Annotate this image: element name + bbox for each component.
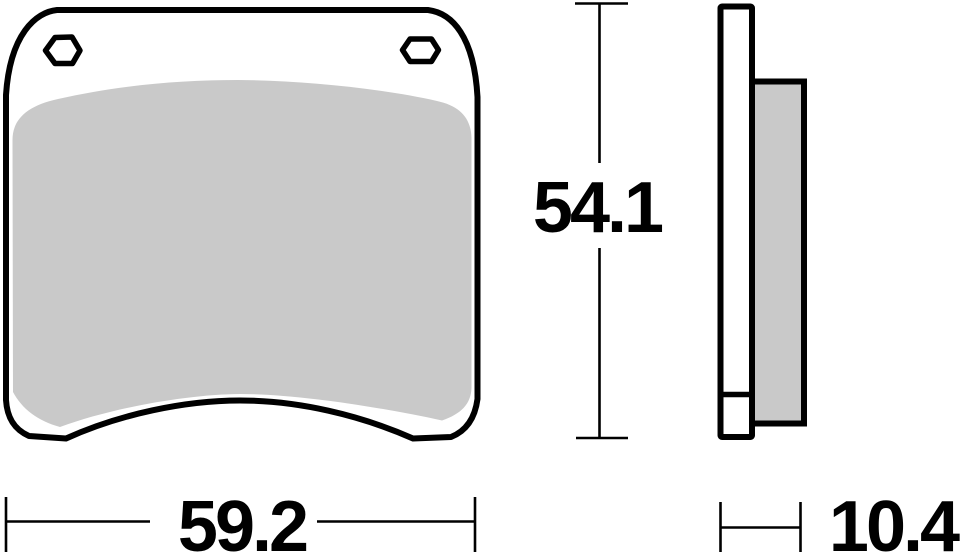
- front-view: [6, 10, 478, 439]
- technical-drawing-canvas: 54.1 59.2 10.4: [0, 0, 960, 552]
- dim-width-label: 59.2: [178, 487, 307, 552]
- dim-thickness: [721, 502, 801, 552]
- dim-height-label: 54.1: [533, 168, 663, 248]
- brake-pad-drawing: 54.1 59.2 10.4: [0, 0, 960, 552]
- friction-material-front: [13, 80, 472, 427]
- dim-thickness-label: 10.4: [829, 487, 960, 552]
- friction-material-side: [752, 82, 804, 424]
- mounting-hole-right-icon: [403, 39, 439, 62]
- side-view: [718, 7, 805, 438]
- mounting-hole-left-icon: [46, 37, 81, 64]
- backing-plate-side: [721, 7, 753, 438]
